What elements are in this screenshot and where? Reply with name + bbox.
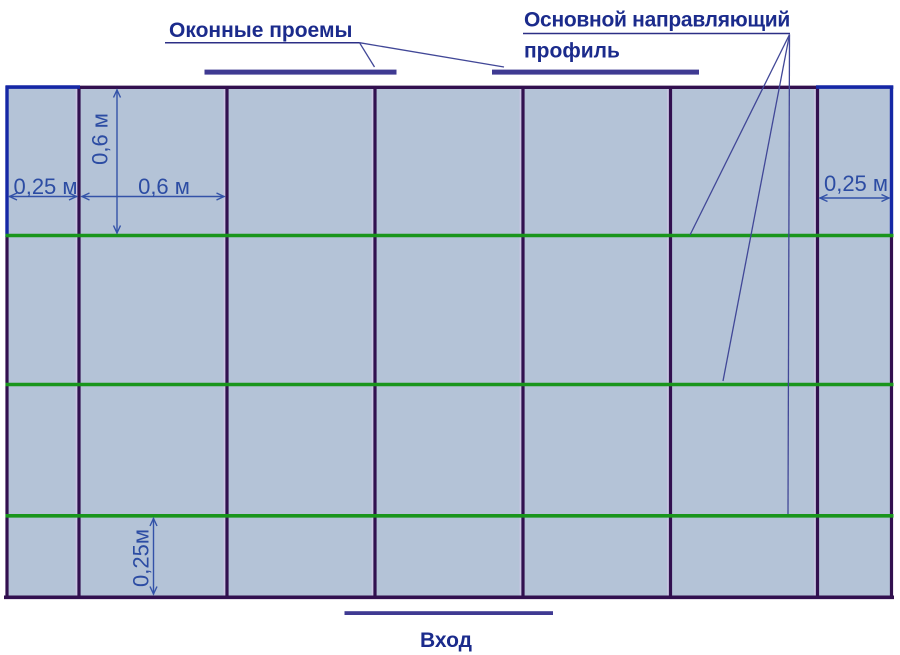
svg-text:Основной направляющий: Основной направляющий [524,9,790,32]
svg-text:Оконные проемы: Оконные проемы [169,19,352,42]
svg-text:0,25 м: 0,25 м [824,171,888,196]
svg-text:0,25 м: 0,25 м [13,174,77,199]
svg-text:профиль: профиль [524,40,620,63]
svg-text:0,6 м: 0,6 м [138,174,190,199]
svg-text:Вход: Вход [420,629,472,652]
svg-text:0,25м: 0,25м [129,529,154,587]
svg-text:0,6 м: 0,6 м [88,113,113,165]
